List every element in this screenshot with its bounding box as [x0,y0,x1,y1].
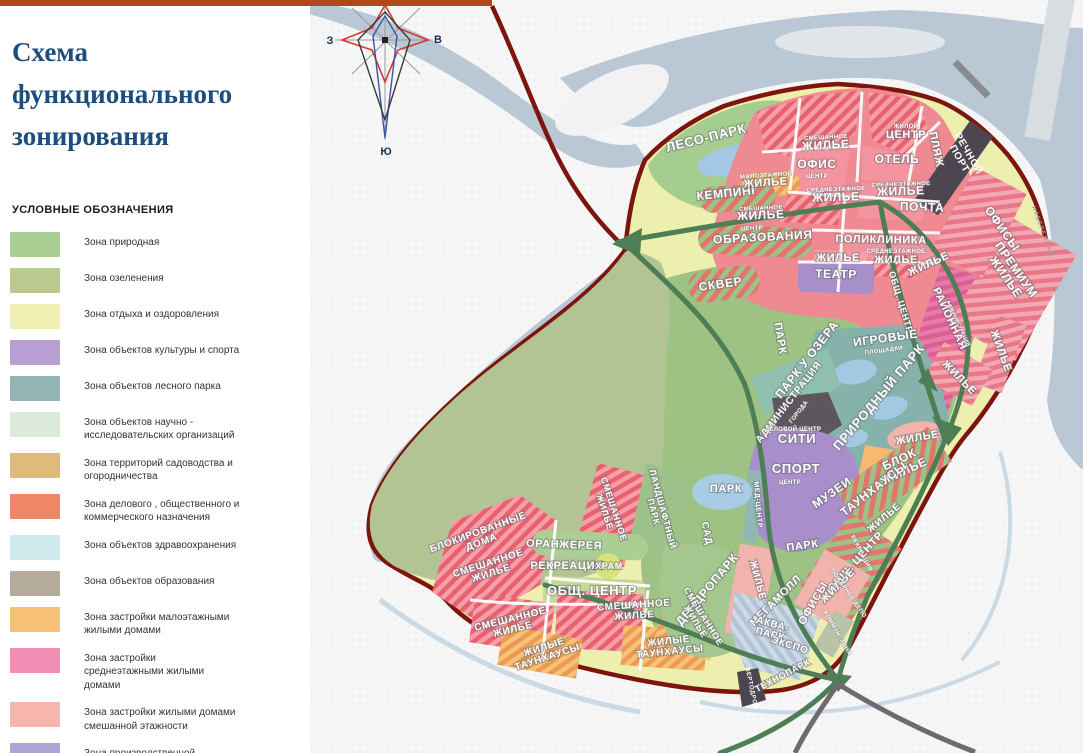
compass-east-label: В [434,34,442,46]
map-label: ЖИЛЬЕ [815,252,860,264]
legend-swatch [10,453,60,478]
legend: Зона природнаяЗона озелененияЗона отдыха… [10,232,296,753]
legend-item: Зона отдыха и оздоровления [10,304,296,330]
legend-item: Зона территорий садоводства и огородниче… [10,453,296,484]
map-label: ПОЧТА [900,199,945,215]
legend-swatch [10,743,60,753]
legend-swatch [10,304,60,329]
legend-item: Зона застройки малоэтажными жилыми домам… [10,607,296,638]
legend-item: Зона объектов лесного парка [10,376,296,402]
map-label: ЖИЛЬЕ [876,183,925,199]
map-label: ОФИС [797,157,836,171]
page-title: Схема функционального зонирования [12,32,296,158]
legend-swatch [10,607,60,632]
map-label: СПОРТ [772,461,820,476]
legend-label: Зона объектов лесного парка [84,376,221,394]
legend-swatch [10,494,60,519]
map-label: ПАРК [710,483,742,495]
map-label: ЦЕНТР [806,174,828,180]
legend-item: Зона объектов научно - исследовательских… [10,412,296,443]
legend-item: Зона объектов культуры и спорта [10,340,296,366]
legend-swatch [10,340,60,365]
map-label: ЖИЛЬЕ [736,207,785,224]
legend-item: Зона застройки жилыми домами смешанной э… [10,702,296,733]
map-label: СИТИ [778,431,816,446]
top-accent-bar [0,0,492,6]
legend-label: Зона объектов научно - исследовательских… [84,412,234,443]
legend-swatch [10,268,60,293]
map-label: ЦЕНТР [779,480,801,486]
legend-swatch [10,571,60,596]
legend-label: Зона объектов культуры и спорта [84,340,239,358]
page: З В Ю ЛЕСО-ПАРККЕМПИНГМАЛОЭТАЖНОЕЖИЛЬЕСМ… [0,0,1083,753]
legend-swatch [10,376,60,401]
compass-south-label: Ю [380,146,391,158]
legend-item: Зона объектов образования [10,571,296,597]
compass-west-label: З [327,35,334,47]
legend-item: Зона природная [10,232,296,258]
legend-item: Зона производственной деятельности [10,743,296,753]
legend-label: Зона делового , общественного и коммерче… [84,494,239,525]
legend-item: Зона озеленения [10,268,296,294]
legend-swatch [10,232,60,257]
legend-item: Зона делового , общественного и коммерче… [10,494,296,525]
map-label: ОТЕЛЬ [875,152,920,166]
map-label: ЦЕНТР [886,129,926,141]
legend-swatch [10,702,60,727]
legend-label: Зона объектов здравоохранения [84,535,236,553]
legend-header: УСЛОВНЫЕ ОБОЗНАЧЕНИЯ [12,204,296,216]
legend-label: Зона застройки малоэтажными жилыми домам… [84,607,229,638]
legend-swatch [10,412,60,437]
map-label: ЖИЛЬЕ [811,189,860,205]
map-label: ТЕАТР [815,267,857,282]
map-label: ХРАМ [595,561,623,571]
map-label: РЕКРЕАЦИЯ [530,560,603,572]
sidebar: Схема функционального зонирования УСЛОВН… [0,0,310,753]
map-label: ПОЛИКЛИНИКА [835,233,926,247]
map-label: ОБЩ. ЦЕНТР [547,583,637,598]
legend-label: Зона застройки жилыми домами смешанной э… [84,702,235,733]
map-label: ЖИЛЬЕ [873,254,918,266]
legend-label: Зона отдыха и оздоровления [84,304,219,322]
legend-label: Зона застройки среднеэтажными жилыми дом… [84,648,204,693]
legend-label: Зона производственной деятельности [84,743,195,753]
legend-swatch [10,535,60,560]
legend-label: Зона природная [84,232,159,250]
legend-label: Зона территорий садоводства и огородниче… [84,453,233,484]
legend-swatch [10,648,60,673]
legend-label: Зона объектов образования [84,571,214,589]
map-label: ЖИЛЬЕ [801,137,850,154]
legend-label: Зона озеленения [84,268,164,286]
legend-item: Зона застройки среднеэтажными жилыми дом… [10,648,296,693]
legend-item: Зона объектов здравоохранения [10,535,296,561]
